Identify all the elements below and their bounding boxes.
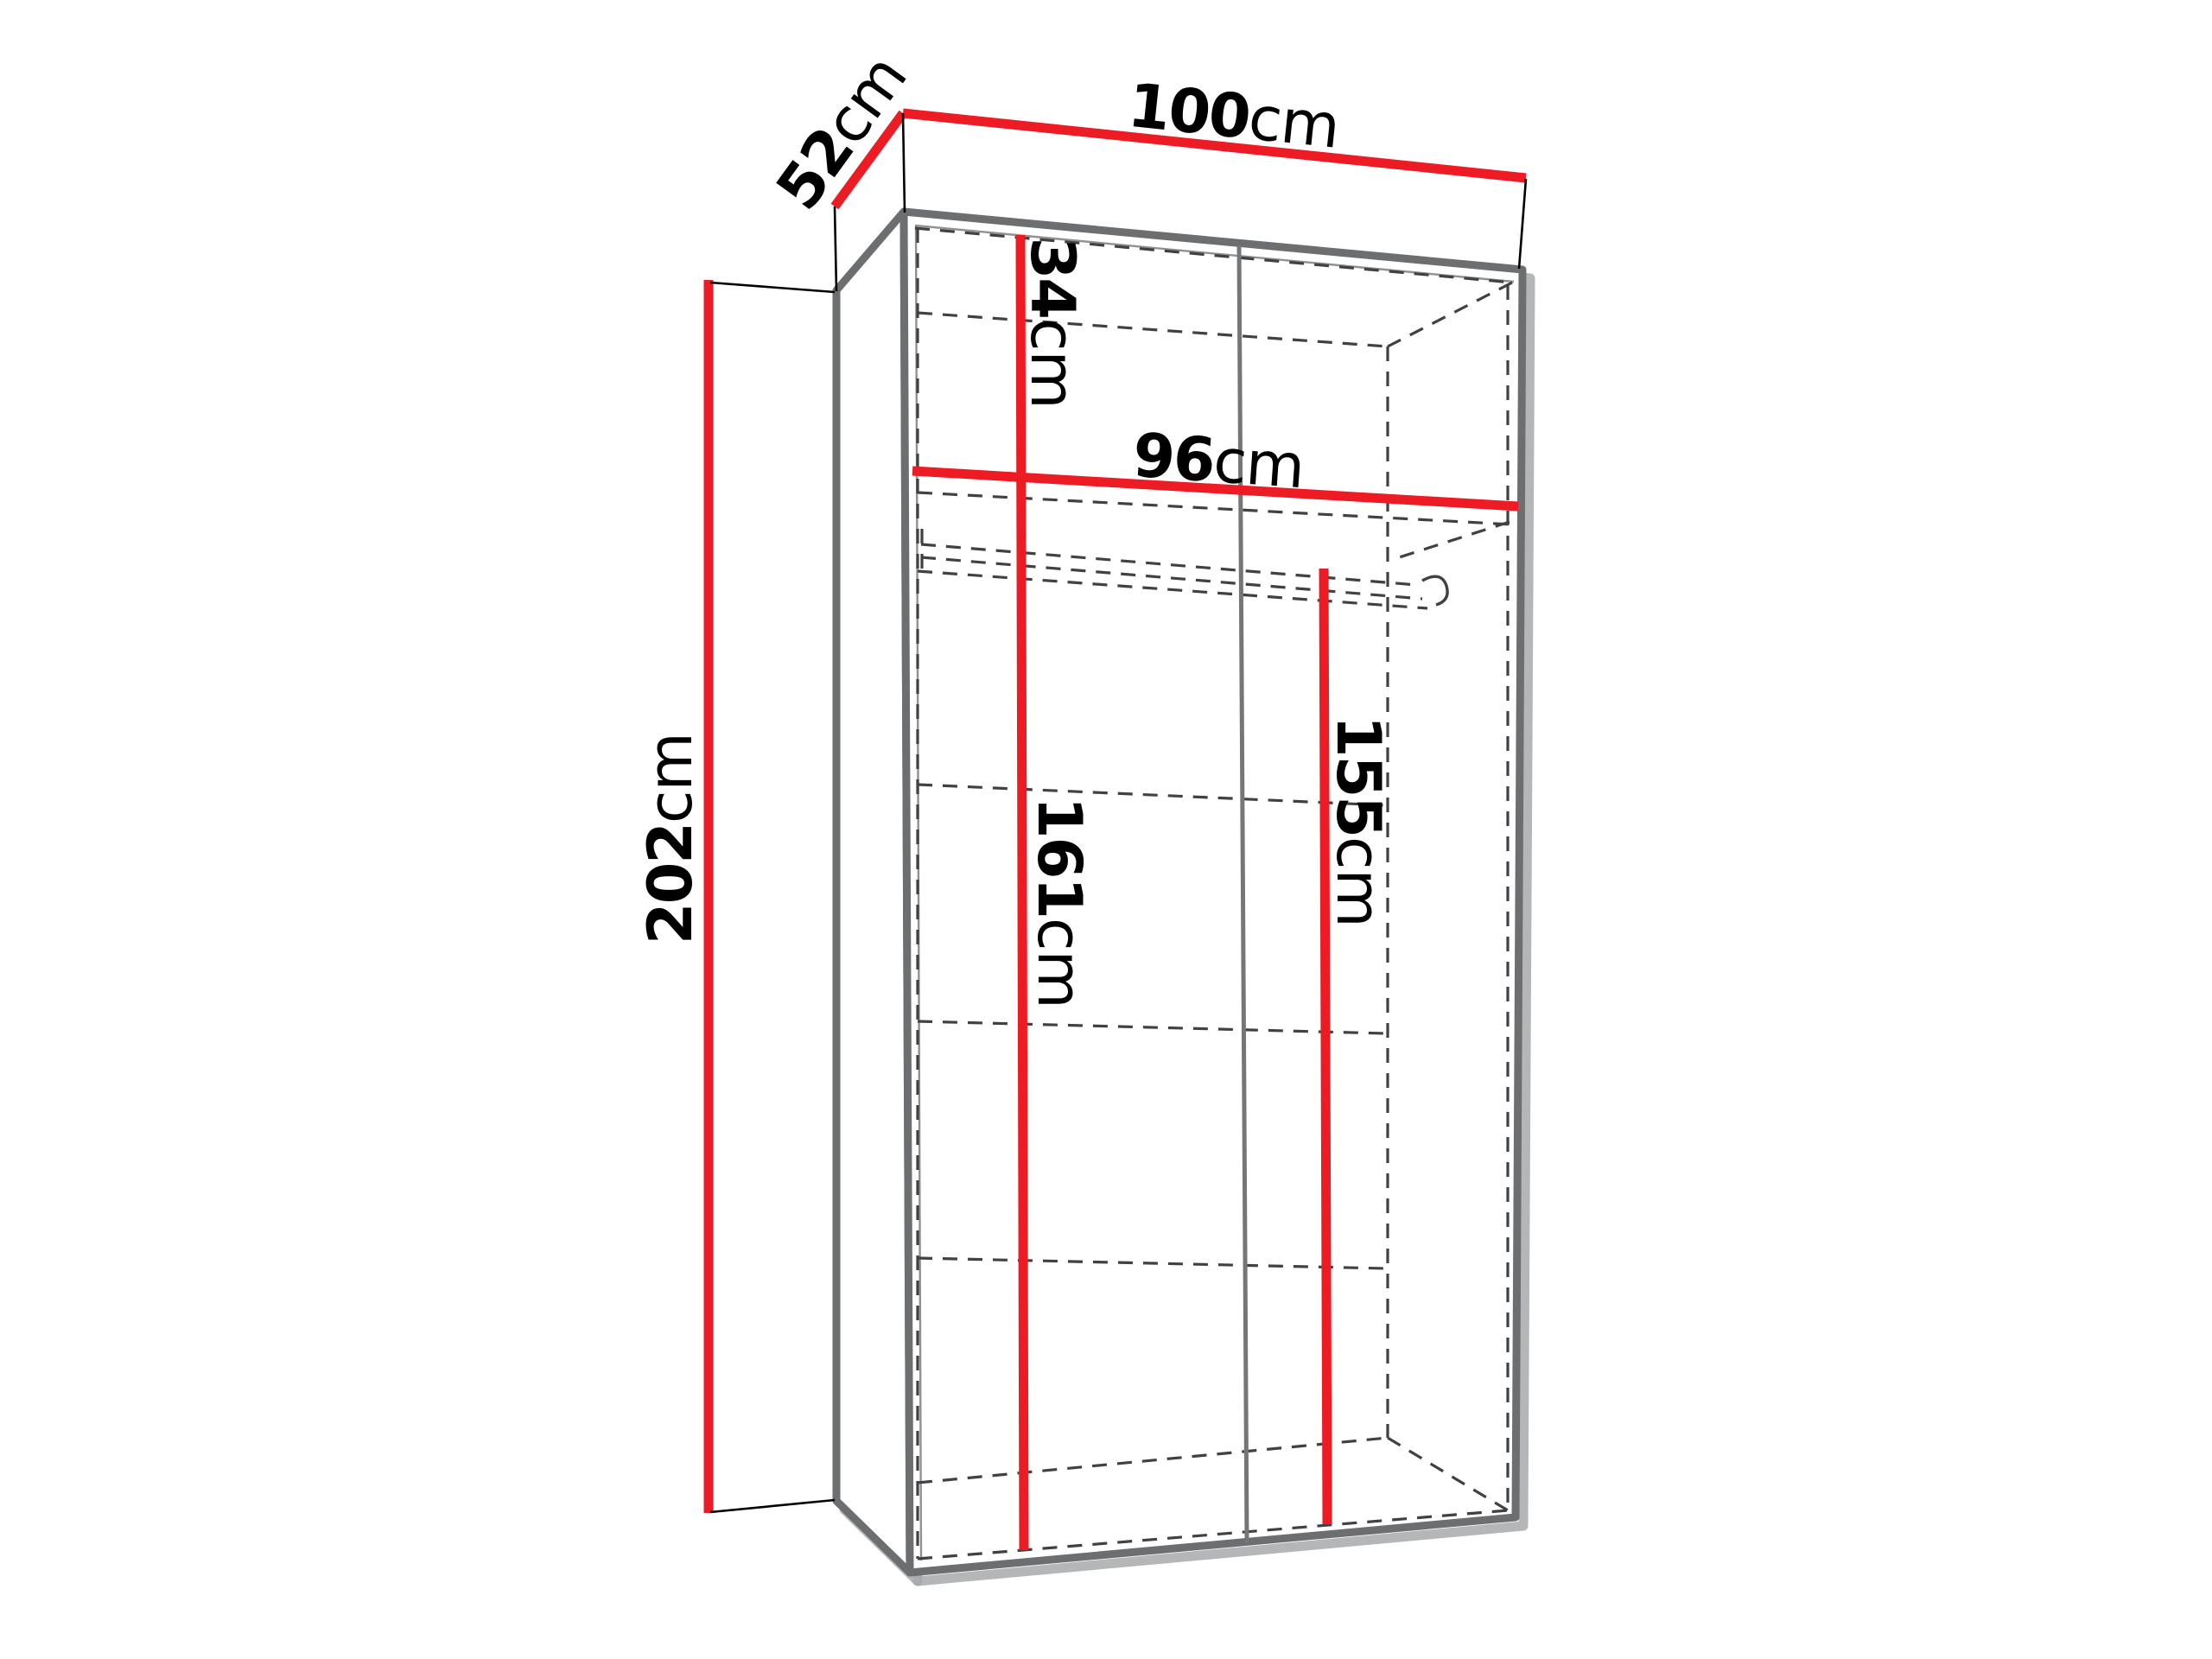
dimension-label-top-section: 34 cm: [1017, 238, 1088, 409]
interior-width-unit: cm: [1211, 425, 1306, 502]
front-face: [904, 212, 1522, 1573]
dimension-line-hanging-section: [1324, 569, 1327, 1524]
top-section-number: 34: [1017, 238, 1088, 318]
extension-front-top-corner: [903, 113, 905, 213]
left-interior-unit: cm: [1024, 918, 1095, 1008]
overall-width-number: 100: [1125, 70, 1253, 153]
hanging-section-number: 155: [1323, 715, 1394, 836]
dimension-label-left-interior: 161 cm: [1024, 797, 1095, 1008]
extension-height-bottom: [710, 1500, 835, 1512]
dimension-line-left-interior: [1020, 235, 1024, 1550]
extension-height-top: [710, 283, 835, 292]
dimension-label-overall-width: 100 cm: [1125, 70, 1343, 162]
overall-height-unit: cm: [635, 733, 706, 823]
diagram-canvas: 100 cm 52 cm 202 cm 34 cm 96 cm 161 cm 1…: [0, 0, 2212, 1659]
dimension-label-hanging-section: 155 cm: [1323, 715, 1394, 927]
wardrobe-dimension-drawing: 100 cm 52 cm 202 cm 34 cm 96 cm 161 cm 1…: [0, 0, 2212, 1659]
overall-width-unit: cm: [1245, 82, 1343, 162]
interior-width-number: 96: [1131, 420, 1217, 496]
extension-width-right: [1519, 179, 1526, 269]
side-panel: [836, 212, 910, 1573]
dimension-label-interior-width: 96 cm: [1131, 420, 1306, 503]
hanging-section-unit: cm: [1323, 836, 1394, 927]
dimension-label-overall-height: 202 cm: [635, 733, 706, 944]
overall-height-number: 202: [635, 823, 706, 944]
top-section-unit: cm: [1017, 318, 1088, 409]
extension-back-top-corner: [835, 207, 836, 291]
left-interior-number: 161: [1024, 797, 1095, 918]
